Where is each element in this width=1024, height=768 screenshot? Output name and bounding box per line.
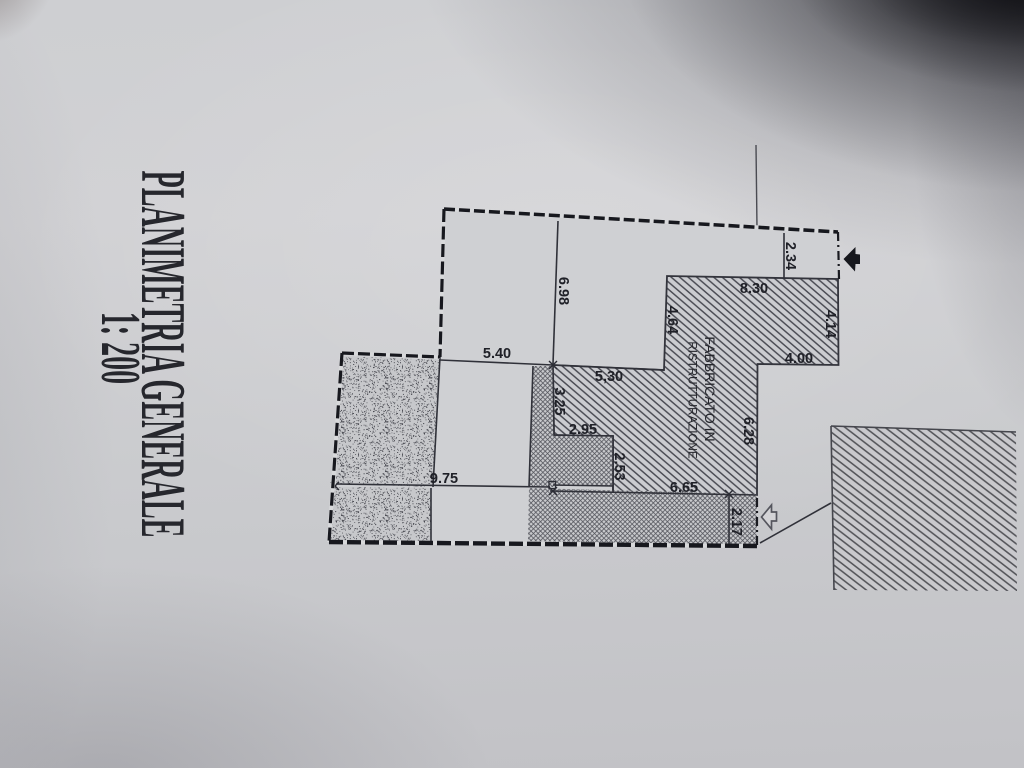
svg-text:2.53: 2.53 [611,452,627,480]
svg-text:2.17: 2.17 [728,508,744,536]
svg-text:6.28: 6.28 [740,417,756,445]
svg-text:6.65: 6.65 [670,480,698,496]
svg-text:8.30: 8.30 [740,281,768,297]
svg-text:2.95: 2.95 [569,422,597,438]
svg-text:4.14: 4.14 [822,310,838,338]
svg-text:9.75: 9.75 [430,471,458,487]
svg-text:6.98: 6.98 [555,277,571,305]
svg-text:RISTRUTTURAZIONE: RISTRUTTURAZIONE [686,341,699,458]
svg-text:4.00: 4.00 [785,351,813,367]
svg-text:3.25: 3.25 [551,387,567,415]
svg-text:1: 200: 1: 200 [89,312,151,384]
svg-text:5,30: 5,30 [595,369,623,385]
svg-text:5.40: 5.40 [483,346,511,362]
svg-text:FABBRICATO IN: FABBRICATO IN [702,336,718,441]
svg-text:2.34: 2.34 [782,242,798,270]
svg-text:4.64: 4.64 [664,306,680,334]
